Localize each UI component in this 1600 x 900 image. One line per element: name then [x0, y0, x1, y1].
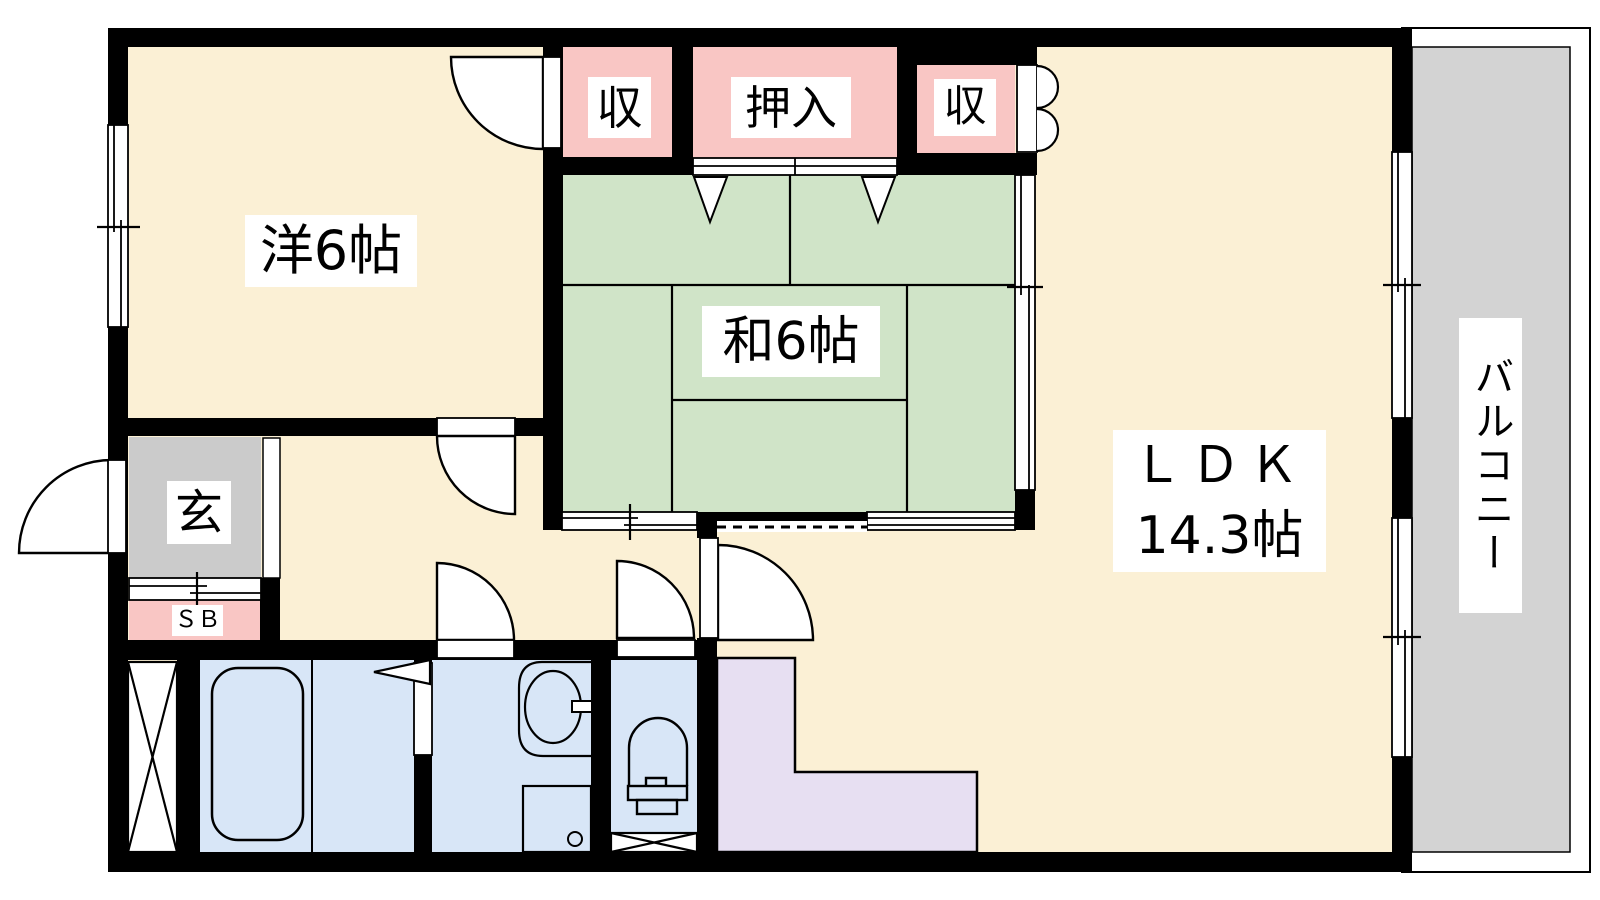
floorplan-canvas: 洋6帖 和6帖 ＬＤＫ 14.3帖 バルコニー 玄 ＳＢ 収 押入 収	[0, 0, 1600, 900]
tatami-south-sliding-door-right	[867, 512, 1015, 530]
closet-left-label: 収	[588, 77, 651, 138]
ldk-label: ＬＤＫ	[1113, 430, 1326, 500]
pipe-space-left	[128, 662, 177, 852]
japanese-room-label: 和6帖	[702, 306, 880, 377]
shoe-box-label: ＳＢ	[172, 605, 223, 636]
front-door	[19, 460, 126, 553]
pipe-space-toilet	[611, 833, 697, 852]
tatami-south-opening-dashed	[717, 521, 867, 532]
balcony-label: バルコニー	[1459, 318, 1522, 613]
ldk-size-label: 14.3帖	[1113, 500, 1326, 572]
oshiire-label: 押入	[731, 77, 851, 138]
bathroom-floor	[197, 660, 414, 852]
toilet-floor	[611, 660, 697, 835]
faucet	[572, 701, 592, 712]
entrance-hall-opening	[263, 438, 280, 578]
oshiire-sliding-door	[693, 158, 897, 175]
western-room-label: 洋6帖	[245, 215, 417, 287]
entrance-label: 玄	[167, 481, 231, 544]
closet-right-label: 収	[934, 79, 996, 136]
